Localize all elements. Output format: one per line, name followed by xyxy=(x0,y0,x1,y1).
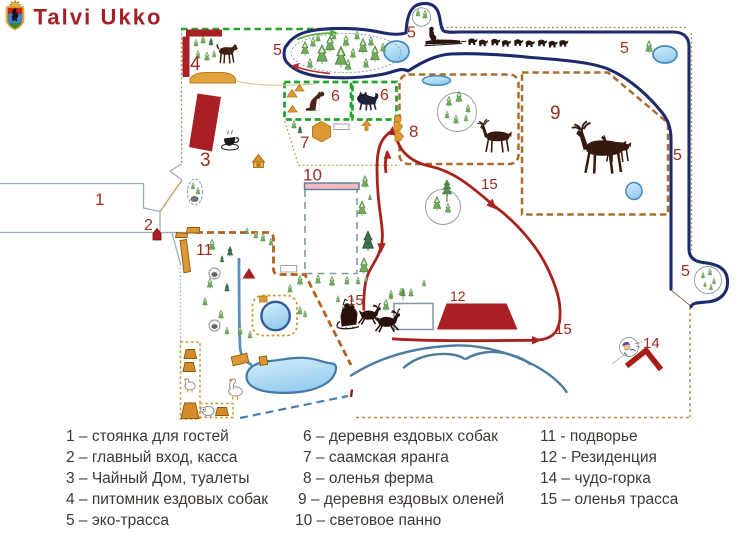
svg-text:8 – оленья ферма: 8 – оленья ферма xyxy=(303,470,434,487)
svg-text:1: 1 xyxy=(95,190,104,209)
svg-text:6: 6 xyxy=(331,88,340,105)
svg-text:5 – эко-трасса: 5 – эко-трасса xyxy=(66,512,169,529)
svg-text:10 – световое панно: 10 – световое панно xyxy=(295,512,441,529)
svg-text:11: 11 xyxy=(196,242,213,259)
svg-text:5: 5 xyxy=(673,147,682,164)
svg-text:5: 5 xyxy=(273,42,282,59)
svg-text:14 – чудо-горка: 14 – чудо-горка xyxy=(540,470,651,487)
svg-text:10: 10 xyxy=(303,166,322,185)
svg-text:11 - подворье: 11 - подворье xyxy=(540,428,638,445)
svg-text:15: 15 xyxy=(347,292,364,309)
svg-text:4: 4 xyxy=(190,54,201,75)
svg-text:6: 6 xyxy=(380,87,389,104)
svg-text:7: 7 xyxy=(300,133,309,152)
svg-text:12: 12 xyxy=(450,288,466,304)
svg-text:5: 5 xyxy=(620,40,629,57)
svg-text:4 – питомник ездовых собак: 4 – питомник ездовых собак xyxy=(66,491,268,508)
svg-text:3 – Чайный Дом, туалеты: 3 – Чайный Дом, туалеты xyxy=(66,470,250,487)
svg-text:Talvi Ukko: Talvi Ukko xyxy=(34,5,161,30)
svg-text:8: 8 xyxy=(409,122,418,141)
svg-text:15 – оленья трасса: 15 – оленья трасса xyxy=(540,491,679,508)
svg-text:12 - Резиденция: 12 - Резиденция xyxy=(540,449,657,466)
svg-text:1 – стоянка для гостей: 1 – стоянка для гостей xyxy=(66,428,229,445)
svg-text:2 – главный вход, касса: 2 – главный вход, касса xyxy=(66,449,238,466)
svg-text:7 – саамская яранга: 7 – саамская яранга xyxy=(303,449,449,466)
svg-text:2: 2 xyxy=(144,217,153,234)
svg-text:5: 5 xyxy=(407,25,416,42)
svg-text:6 – деревня ездовых собак: 6 – деревня ездовых собак xyxy=(303,428,498,445)
svg-text:15: 15 xyxy=(481,176,498,193)
svg-text:3: 3 xyxy=(200,150,211,171)
svg-text:5: 5 xyxy=(681,263,690,280)
svg-text:9: 9 xyxy=(550,103,561,124)
svg-text:14: 14 xyxy=(643,335,660,352)
svg-text:9 – деревня ездовых оленей: 9 – деревня ездовых оленей xyxy=(298,491,504,508)
svg-text:15: 15 xyxy=(555,321,572,338)
